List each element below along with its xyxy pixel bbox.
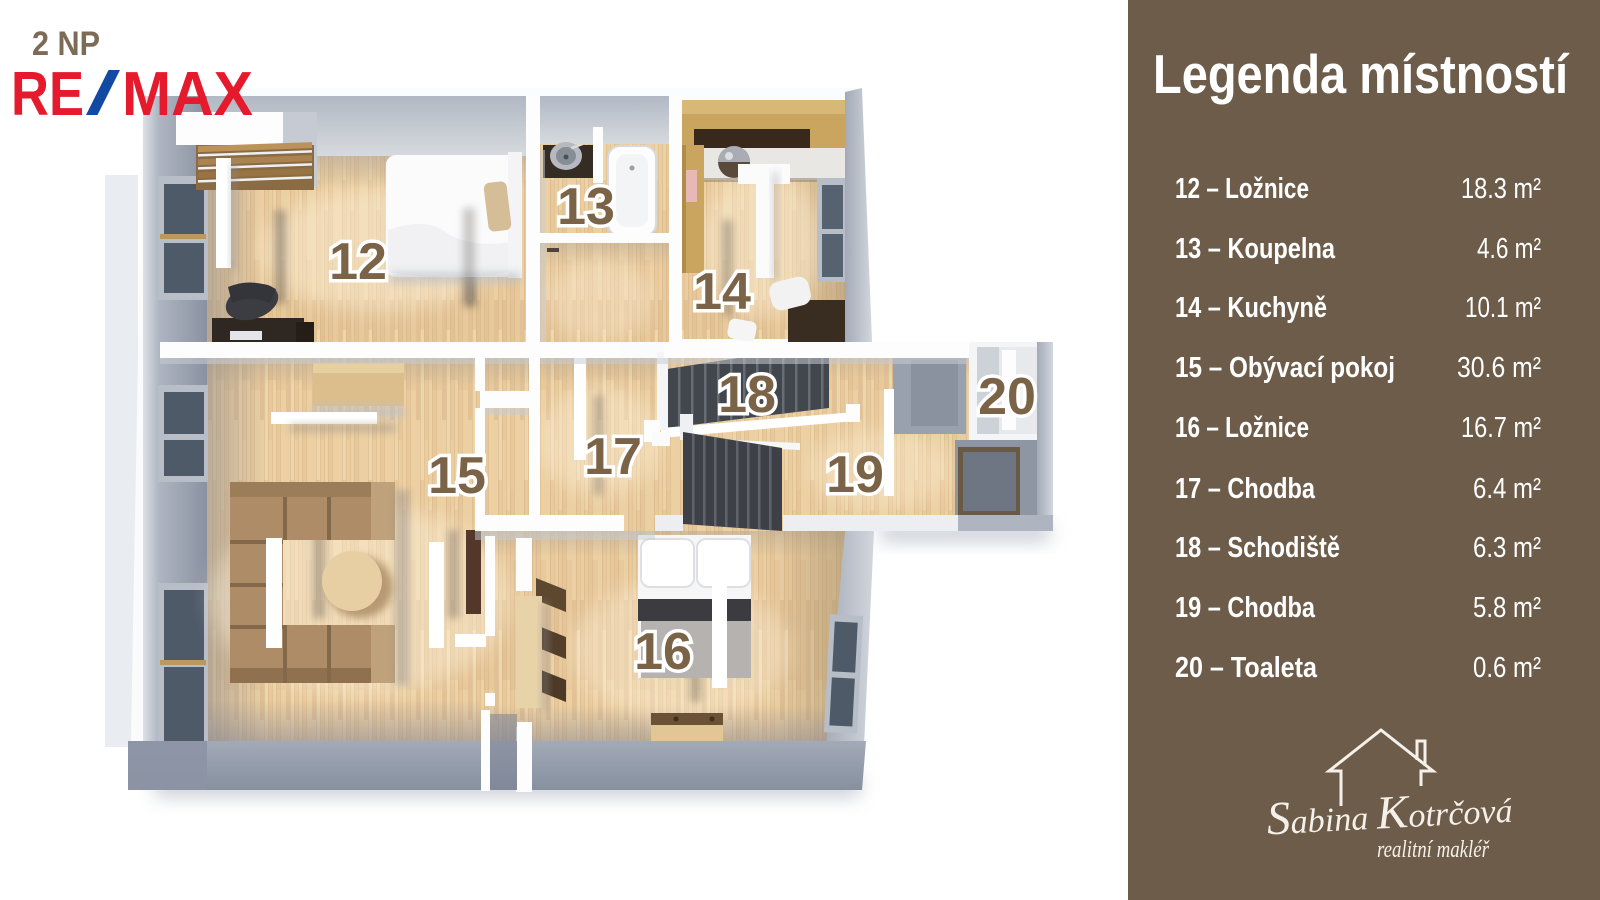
- svg-text:15: 15: [428, 447, 486, 505]
- svg-text:13 – Koupelna: 13 – Koupelna: [1175, 233, 1336, 265]
- svg-text:17: 17: [584, 428, 642, 486]
- svg-text:MAX: MAX: [122, 60, 253, 129]
- svg-text:2 NP: 2 NP: [32, 25, 100, 63]
- svg-text:14 – Kuchyně: 14 – Kuchyně: [1175, 292, 1327, 324]
- svg-text:18.3 m²: 18.3 m²: [1461, 173, 1541, 205]
- svg-text:19: 19: [826, 446, 884, 504]
- svg-text:30.6 m²: 30.6 m²: [1457, 352, 1541, 384]
- svg-text:Legenda místností: Legenda místností: [1153, 43, 1569, 105]
- svg-text:16 – Ložnice: 16 – Ložnice: [1175, 412, 1309, 444]
- svg-text:12 – Ložnice: 12 – Ložnice: [1175, 173, 1309, 205]
- svg-text:20: 20: [978, 368, 1036, 426]
- svg-text:6.4 m²: 6.4 m²: [1473, 473, 1541, 505]
- svg-text:RE: RE: [11, 60, 84, 129]
- svg-text:0.6 m²: 0.6 m²: [1473, 652, 1541, 684]
- svg-text:16.7 m²: 16.7 m²: [1461, 412, 1541, 444]
- svg-text:12: 12: [329, 233, 387, 291]
- svg-text:14: 14: [693, 263, 751, 321]
- svg-text:13: 13: [557, 178, 615, 236]
- svg-text:5.8 m²: 5.8 m²: [1473, 592, 1541, 624]
- svg-text:16: 16: [634, 623, 692, 681]
- svg-text:10.1 m²: 10.1 m²: [1465, 292, 1541, 324]
- svg-text:realitní makléř: realitní makléř: [1377, 837, 1490, 863]
- svg-text:15 – Obývací pokoj: 15 – Obývací pokoj: [1175, 352, 1395, 384]
- svg-text:20 – Toaleta: 20 – Toaleta: [1175, 652, 1318, 684]
- svg-text:18 – Schodiště: 18 – Schodiště: [1175, 532, 1340, 564]
- svg-text:17 – Chodba: 17 – Chodba: [1175, 473, 1316, 505]
- svg-text:18: 18: [718, 366, 776, 424]
- svg-text:6.3 m²: 6.3 m²: [1473, 532, 1541, 564]
- svg-text:19 – Chodba: 19 – Chodba: [1175, 592, 1316, 624]
- svg-text:4.6 m²: 4.6 m²: [1477, 233, 1541, 265]
